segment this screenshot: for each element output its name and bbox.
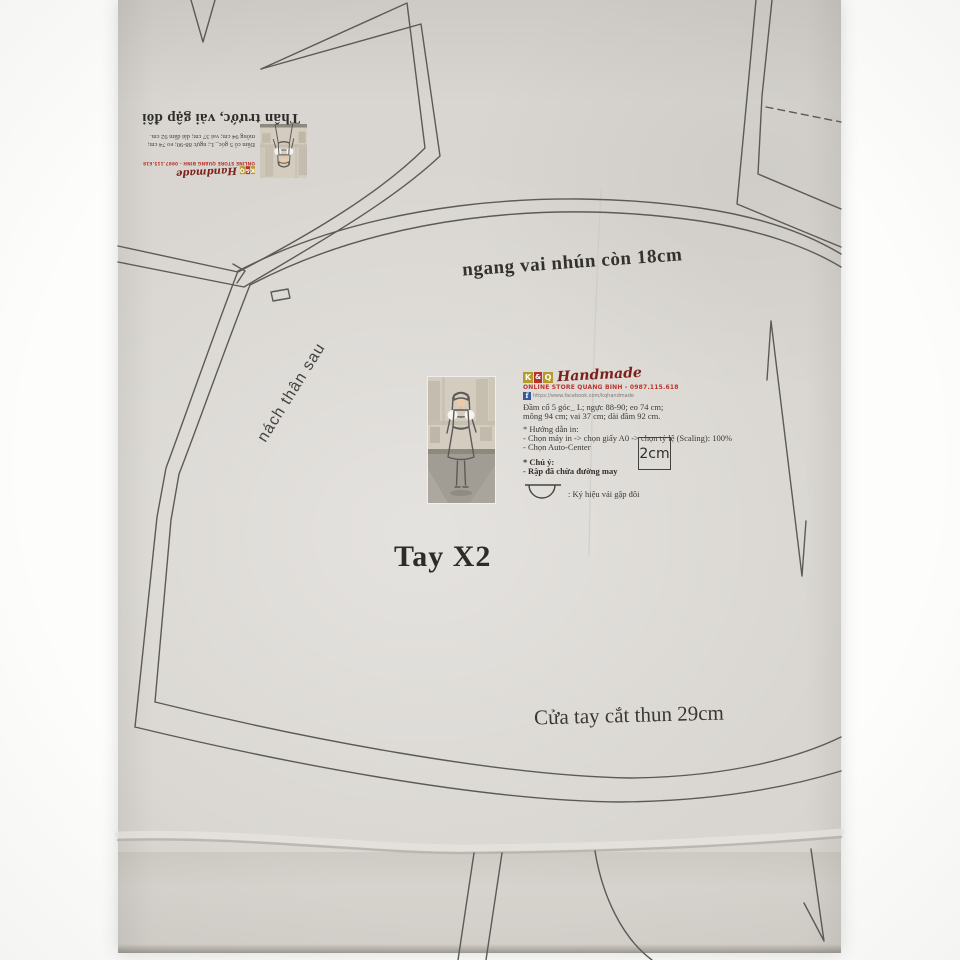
- fold-symbol-caption: : Ký hiệu vải gập đôi: [568, 489, 640, 503]
- scale-reference-label: 2cm: [639, 446, 669, 462]
- piece-name-label: Tay X2: [394, 540, 491, 574]
- brand-script-name: Handmade: [176, 165, 238, 180]
- topright-dashed-line: [766, 107, 841, 122]
- garment-measurements-line2: mông 94 cm; vai 37 cm; dài đầm 92 cm.: [151, 133, 255, 141]
- brand-letter-amp: &: [245, 166, 249, 174]
- scale-reference-box: 2cm: [638, 437, 671, 470]
- brand-letter-amp: &: [534, 372, 542, 383]
- brand-letter-q: Q: [543, 372, 553, 383]
- belowfold-curve: [595, 851, 652, 960]
- sleeve-left-inner-line: [155, 285, 250, 702]
- dress-model-photo: [428, 377, 495, 503]
- belowfold-line-1: [458, 853, 474, 960]
- front-piece-label-block: K & Q Handmade ONLINE STORE QUANG BINH -…: [148, 95, 312, 185]
- sleeve-notch-square: [271, 289, 290, 301]
- facebook-icon: f: [523, 392, 531, 400]
- topright-outer-line: [737, 0, 841, 247]
- sleeve-left-outer-line: [135, 271, 238, 727]
- sleeve-hem-inner-line: [155, 702, 841, 778]
- front-piece-name-label: Thân trước, vải gập đôi: [158, 109, 300, 126]
- sleeve-hem-measure-label: Cửa tay cắt thun 29cm: [534, 701, 724, 731]
- brand-facebook-row: f https://www.facebook.com/kqhandmade: [523, 392, 795, 400]
- garment-measurements-line2: mông 94 cm; vai 37 cm; dài đầm 92 cm.: [523, 412, 795, 421]
- brand-letter-k: K: [523, 372, 533, 383]
- belowfold-arrow: [804, 849, 824, 941]
- garment-measurements-line1: Đầm cổ 5 góc_ L; ngực 88-90; eo 74 cm;: [151, 141, 255, 149]
- sewing-pattern-photo: ngang vai nhún còn 18cm nách thân sau Ta…: [0, 0, 960, 960]
- brand-script-name: Handmade: [557, 365, 643, 385]
- brand-logo-small: K & Q Handmade ONLINE STORE QUANG BINH -…: [183, 160, 255, 177]
- facebook-url: https://www.facebook.com/kqhandmade: [533, 393, 634, 399]
- dress-model-photo-small: [260, 124, 307, 178]
- topright-inner-line: [758, 0, 841, 209]
- belowfold-line-2: [486, 853, 502, 960]
- brand-tagline: ONLINE STORE QUANG BINH - 0987.115.618: [523, 384, 795, 391]
- brand-letter-k: K: [251, 166, 255, 174]
- brand-logo: K & Q Handmade: [523, 368, 795, 383]
- sleeve-hem-outer-line: [135, 727, 841, 802]
- bodice-dart-lines: [191, 0, 215, 42]
- brand-letter-q: Q: [240, 166, 245, 174]
- pattern-info-block: K & Q Handmade ONLINE STORE QUANG BINH -…: [428, 366, 798, 508]
- fold-symbol-icon: [523, 483, 563, 503]
